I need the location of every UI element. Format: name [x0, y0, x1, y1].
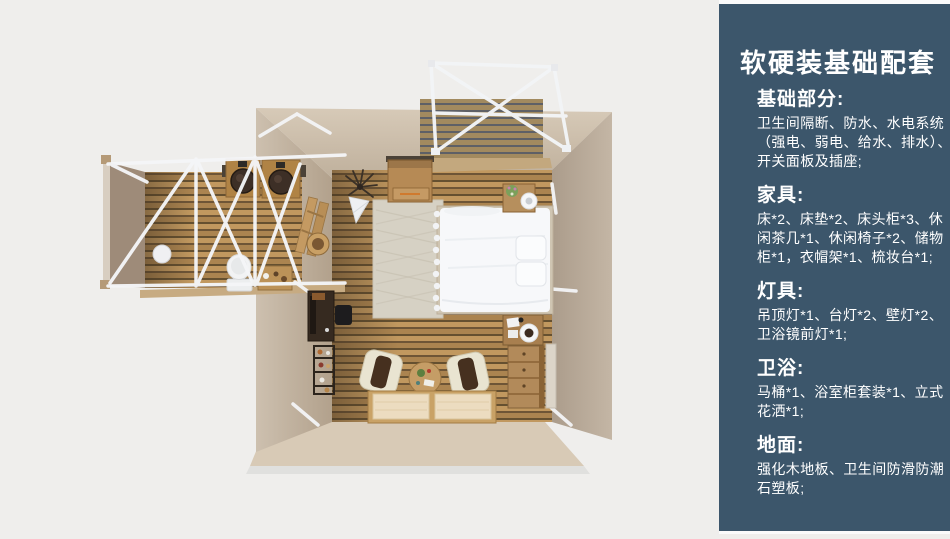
section-line: 柜*1，衣帽架*1、梳妆台*1; [757, 248, 940, 267]
floorplan-render [0, 0, 719, 534]
book [312, 293, 325, 300]
room-top-view [0, 0, 719, 534]
frame-cap [562, 145, 571, 152]
rug [373, 200, 443, 318]
photo-frame [507, 317, 520, 328]
section-heading: 基础部分: [757, 88, 940, 112]
section-line: 开关面板及插座; [757, 152, 940, 171]
section-furniture: 家具: 床*2、床垫*2、床头柜*3、休 闲茶几*1、休闲椅子*2、储物 柜*1… [757, 184, 940, 267]
room-shadow [246, 466, 590, 474]
section-line: 卫浴镜前灯*1; [757, 325, 940, 344]
frame-cap [428, 60, 435, 67]
photo-frame [508, 330, 518, 338]
section-line: （强电、弱电、给水、排水）、 [757, 133, 940, 152]
vanity [503, 315, 543, 345]
package-sections: 基础部分: 卫生间隔断、防水、水电系统 （强电、弱电、给水、排水）、 开关面板及… [740, 88, 940, 498]
nightstand [503, 184, 537, 212]
section-heading: 地面: [757, 434, 940, 458]
lounge-chair [445, 350, 490, 397]
section-line: 卫生间隔断、防水、水电系统 [757, 114, 940, 133]
sidebar-column: 软硬装基础配套 基础部分: 卫生间隔断、防水、水电系统 （强电、弱电、给水、排水… [719, 0, 950, 534]
section-basics: 基础部分: 卫生间隔断、防水、水电系统 （强电、弱电、给水、排水）、 开关面板及… [757, 88, 940, 171]
section-heading: 卫浴: [757, 357, 940, 381]
pillow [516, 236, 546, 260]
package-sidebar: 软硬装基础配套 基础部分: 卫生间隔断、防水、水电系统 （强电、弱电、给水、排水… [719, 4, 950, 531]
section-bathroom: 卫浴: 马桶*1、浴室柜套装*1、立式 花洒*1; [757, 357, 940, 421]
storage-cabinet [386, 156, 434, 202]
section-line: 石塑板; [757, 479, 940, 498]
section-heading: 灯具: [757, 280, 940, 304]
pillow [516, 262, 546, 286]
bed [433, 206, 553, 314]
faucet-icon [276, 162, 285, 168]
ball-stool [153, 245, 171, 263]
desk [308, 291, 334, 341]
page-title: 软硬装基础配套 [740, 46, 940, 80]
dresser [508, 346, 544, 408]
section-line: 床*2、床垫*2、床头柜*3、休 [757, 210, 940, 229]
faucet-icon [238, 161, 247, 167]
frame-cap [431, 148, 440, 155]
section-line: 强化木地板、卫生间防滑防潮 [757, 460, 940, 479]
plant-icon [417, 369, 425, 377]
mirror-panel [546, 344, 556, 408]
section-heading: 家具: [757, 184, 940, 208]
bathroom-left-wall [108, 162, 145, 288]
section-flooring: 地面: 强化木地板、卫生间防滑防潮 石塑板; [757, 434, 940, 498]
floor-mats [368, 391, 496, 423]
section-line: 吊顶灯*1、台灯*2、壁灯*2、 [757, 306, 940, 325]
section-line: 马桶*1、浴室柜套装*1、立式 [757, 383, 940, 402]
frame-cap [551, 64, 558, 71]
coffee-table [409, 362, 441, 394]
section-line: 闲茶几*1、休闲椅子*2、储物 [757, 229, 940, 248]
section-line: 花洒*1; [757, 402, 940, 421]
desk-chair [335, 305, 352, 325]
section-lighting: 灯具: 吊顶灯*1、台灯*2、壁灯*2、 卫浴镜前灯*1; [757, 280, 940, 344]
